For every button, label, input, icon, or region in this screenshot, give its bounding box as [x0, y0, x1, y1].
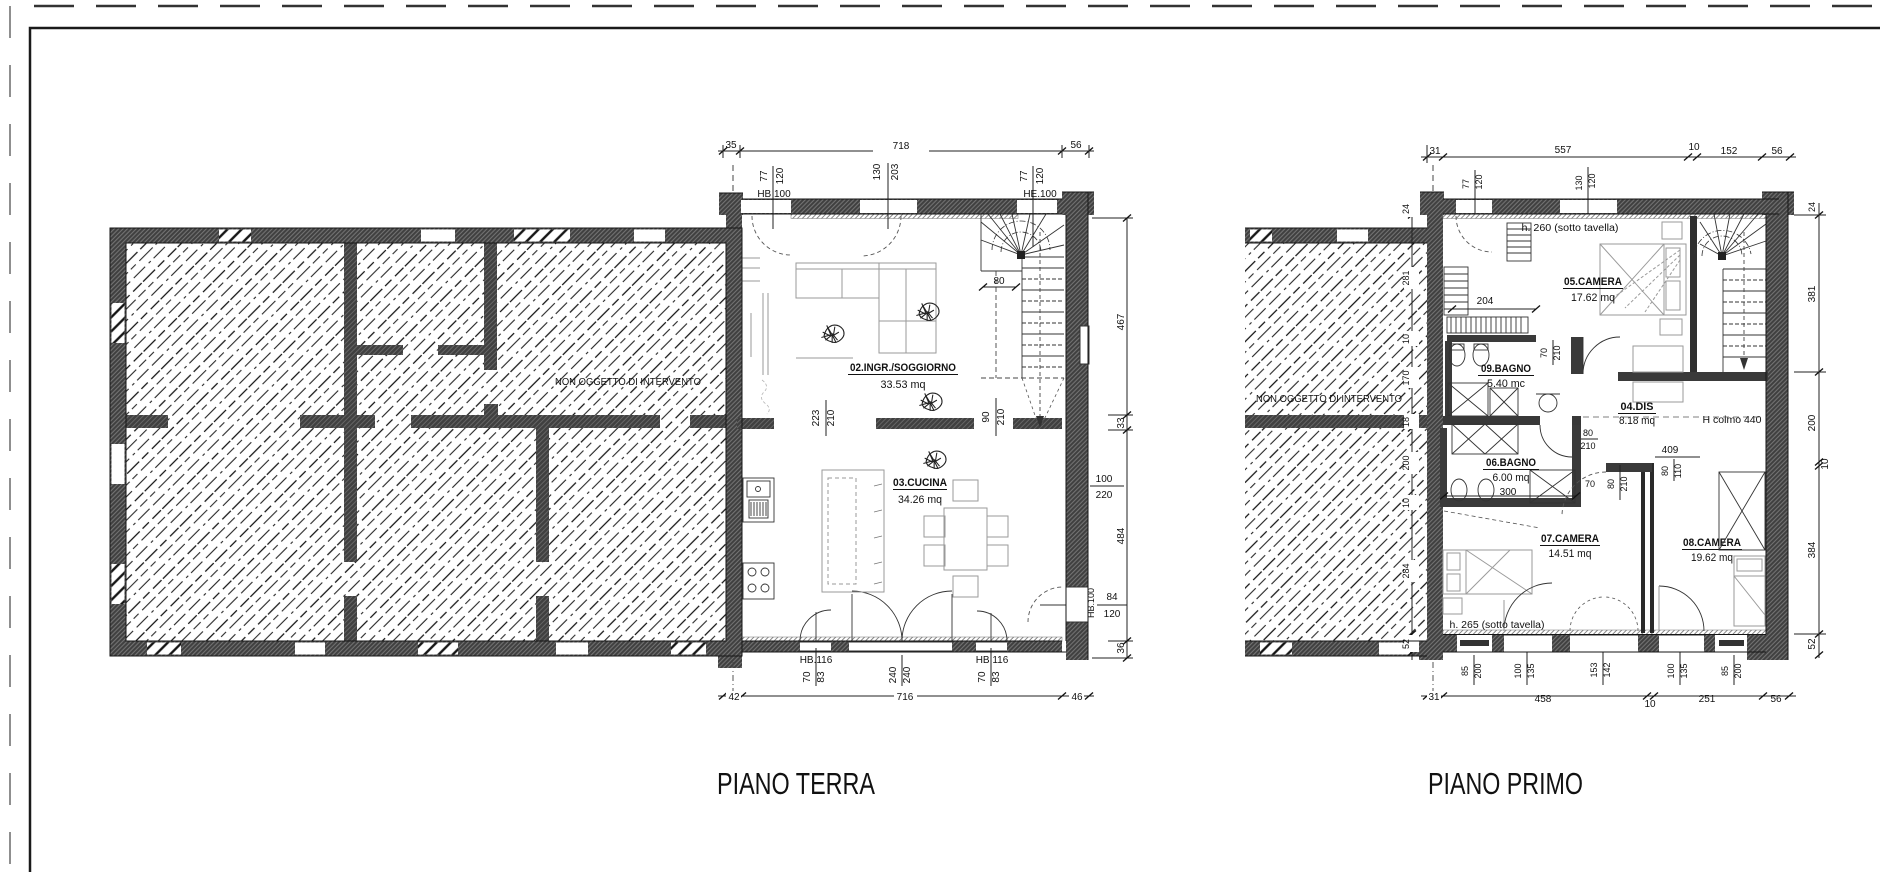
svg-text:36: 36 [1116, 642, 1127, 654]
svg-text:100: 100 [1666, 663, 1676, 678]
svg-text:200: 200 [1807, 414, 1818, 431]
svg-text:6.00 mq: 6.00 mq [1493, 472, 1530, 484]
svg-text:05.CAMERA: 05.CAMERA [1564, 276, 1622, 288]
svg-text:h. 260 (sotto tavella): h. 260 (sotto tavella) [1522, 223, 1619, 234]
svg-text:120: 120 [1104, 609, 1121, 620]
svg-text:135: 135 [1679, 663, 1689, 678]
svg-text:120: 120 [1474, 174, 1484, 189]
svg-text:52: 52 [1807, 638, 1818, 650]
svg-text:484: 484 [1116, 527, 1127, 544]
svg-text:80: 80 [1660, 466, 1670, 476]
svg-text:10: 10 [1401, 334, 1411, 344]
svg-text:142: 142 [1602, 662, 1612, 677]
svg-text:135: 135 [1526, 663, 1536, 678]
svg-text:PIANO TERRA: PIANO TERRA [717, 766, 875, 801]
svg-text:10: 10 [1644, 699, 1656, 710]
svg-text:HE.100: HE.100 [1023, 189, 1057, 200]
svg-text:220: 220 [1096, 490, 1113, 501]
svg-text:31: 31 [1428, 692, 1440, 703]
svg-text:210: 210 [1552, 345, 1562, 360]
svg-text:204: 204 [1477, 296, 1494, 307]
svg-text:56: 56 [1070, 140, 1082, 151]
svg-text:284: 284 [1401, 563, 1411, 578]
svg-text:718: 718 [893, 141, 910, 152]
svg-text:NON OGGETTO DI INTERVENTO: NON OGGETTO DI INTERVENTO [1256, 394, 1402, 405]
svg-text:09.BAGNO: 09.BAGNO [1481, 363, 1531, 375]
svg-text:77: 77 [1461, 179, 1471, 189]
svg-text:24: 24 [1807, 202, 1817, 212]
svg-text:85: 85 [1720, 666, 1730, 676]
svg-text:458: 458 [1535, 694, 1552, 705]
svg-text:80: 80 [1606, 479, 1616, 489]
svg-text:240: 240 [888, 666, 899, 683]
svg-text:24: 24 [1401, 204, 1411, 214]
svg-text:70: 70 [1539, 348, 1549, 358]
svg-text:17.62 mq: 17.62 mq [1571, 292, 1615, 304]
svg-text:80: 80 [1583, 428, 1593, 438]
svg-text:08.CAMERA: 08.CAMERA [1683, 537, 1741, 549]
svg-text:210: 210 [996, 408, 1007, 425]
svg-text:34.26 mq: 34.26 mq [898, 494, 942, 506]
svg-text:NON OGGETTO DI INTERVENTO: NON OGGETTO DI INTERVENTO [555, 377, 701, 388]
svg-text:80: 80 [993, 276, 1005, 287]
svg-text:5.40 mc: 5.40 mc [1487, 378, 1525, 390]
svg-text:70: 70 [1585, 479, 1595, 489]
svg-text:251: 251 [1699, 694, 1716, 705]
svg-text:14.51 mq: 14.51 mq [1549, 548, 1592, 560]
svg-text:557: 557 [1555, 145, 1572, 156]
svg-text:203: 203 [890, 163, 901, 180]
svg-text:31: 31 [1429, 146, 1441, 157]
svg-text:100: 100 [1096, 474, 1113, 485]
svg-text:19.62 mq: 19.62 mq [1691, 552, 1733, 564]
svg-text:10: 10 [1820, 458, 1831, 470]
svg-text:240: 240 [902, 666, 913, 683]
svg-text:33.53 mq: 33.53 mq [881, 379, 926, 391]
svg-text:223: 223 [811, 409, 822, 426]
svg-text:281: 281 [1401, 270, 1411, 285]
svg-text:84: 84 [1106, 592, 1118, 603]
svg-text:HB.116: HB.116 [976, 655, 1009, 666]
svg-text:200: 200 [1473, 663, 1483, 678]
svg-text:210: 210 [826, 409, 837, 426]
svg-text:120: 120 [1587, 173, 1597, 188]
svg-text:381: 381 [1807, 285, 1818, 302]
svg-text:210: 210 [1619, 476, 1629, 491]
svg-text:77: 77 [1019, 170, 1030, 182]
svg-text:83: 83 [816, 671, 827, 683]
svg-text:10: 10 [1688, 142, 1700, 153]
svg-text:06.BAGNO: 06.BAGNO [1486, 457, 1536, 469]
svg-text:170: 170 [1401, 370, 1411, 385]
svg-text:07.CAMERA: 07.CAMERA [1541, 533, 1599, 545]
svg-text:77: 77 [759, 170, 770, 182]
svg-text:42: 42 [728, 692, 740, 703]
svg-text:02.INGR./SOGGIORNO: 02.INGR./SOGGIORNO [850, 362, 956, 374]
svg-text:110: 110 [1673, 464, 1683, 478]
svg-text:130: 130 [1574, 175, 1584, 190]
svg-text:83: 83 [991, 671, 1002, 683]
svg-text:h. 265 (sotto tavella): h. 265 (sotto tavella) [1450, 620, 1545, 631]
svg-text:100: 100 [1513, 663, 1523, 678]
svg-text:35: 35 [725, 140, 737, 151]
svg-text:90: 90 [981, 411, 992, 423]
svg-text:70: 70 [802, 671, 813, 683]
svg-text:52: 52 [1401, 639, 1411, 649]
svg-text:70: 70 [977, 671, 988, 683]
svg-text:03.CUCINA: 03.CUCINA [893, 477, 947, 489]
svg-text:200: 200 [1733, 663, 1743, 678]
svg-text:46: 46 [1071, 692, 1083, 703]
svg-text:210: 210 [1580, 441, 1595, 451]
svg-text:120: 120 [775, 167, 786, 184]
svg-text:56: 56 [1770, 694, 1782, 705]
svg-text:56: 56 [1771, 146, 1783, 157]
svg-text:120: 120 [1035, 167, 1046, 184]
svg-text:85: 85 [1460, 666, 1470, 676]
svg-text:04.DIS: 04.DIS [1621, 401, 1654, 413]
svg-text:467: 467 [1116, 313, 1127, 330]
svg-text:18: 18 [1401, 417, 1411, 427]
svg-text:384: 384 [1807, 541, 1818, 558]
svg-text:152: 152 [1721, 146, 1738, 157]
svg-text:PIANO PRIMO: PIANO PRIMO [1428, 766, 1583, 801]
svg-text:10: 10 [1401, 498, 1411, 508]
svg-text:200: 200 [1401, 455, 1411, 470]
svg-text:130: 130 [872, 163, 883, 180]
svg-text:33: 33 [1116, 417, 1127, 429]
svg-text:409: 409 [1662, 445, 1679, 456]
svg-text:153: 153 [1589, 662, 1599, 677]
svg-text:HB 100: HB 100 [757, 189, 791, 200]
svg-text:716: 716 [897, 692, 914, 703]
